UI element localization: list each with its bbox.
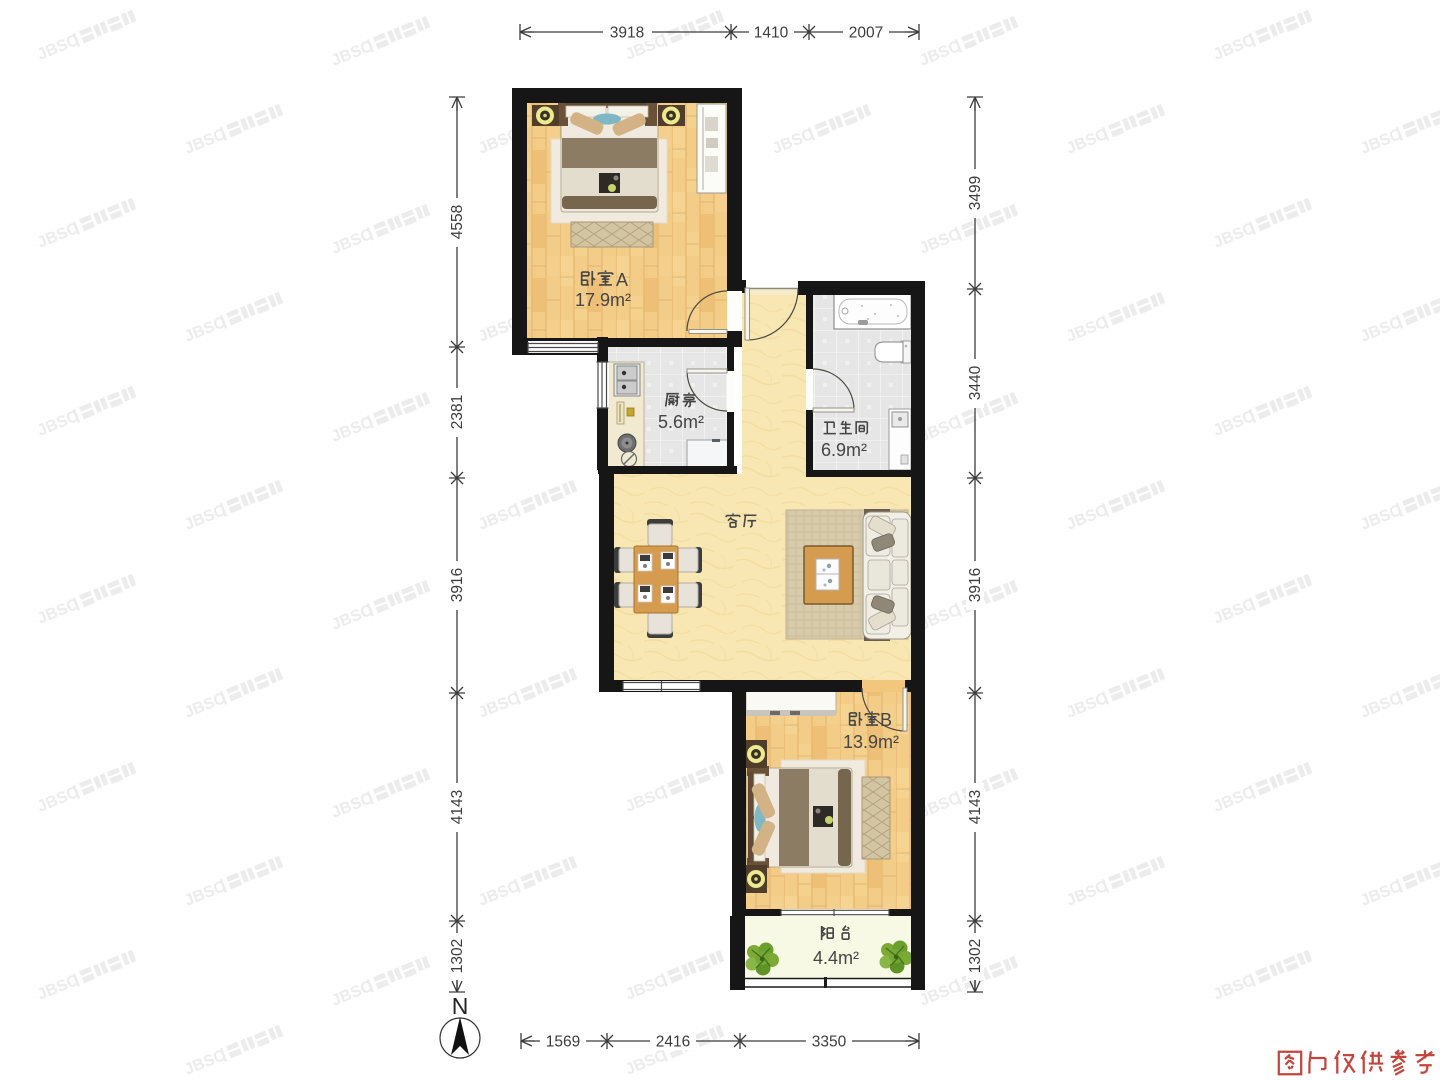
svg-text:2416: 2416 (656, 1034, 690, 1051)
svg-text:A: A (616, 270, 628, 290)
svg-text:4143: 4143 (967, 790, 984, 824)
svg-text:B: B (880, 710, 892, 730)
svg-text:4558: 4558 (449, 205, 466, 239)
svg-text:17.9m²: 17.9m² (575, 290, 631, 310)
svg-text:3918: 3918 (610, 25, 644, 42)
svg-text:3916: 3916 (967, 568, 984, 602)
svg-text:1410: 1410 (754, 25, 789, 42)
svg-text:4143: 4143 (449, 790, 466, 824)
svg-text:N: N (452, 993, 469, 1019)
svg-text:3916: 3916 (449, 568, 466, 602)
svg-text:2007: 2007 (849, 25, 883, 42)
svg-text:3440: 3440 (967, 365, 984, 400)
svg-text:4.4m²: 4.4m² (813, 948, 859, 968)
svg-text:3499: 3499 (967, 176, 984, 210)
svg-text:1302: 1302 (449, 939, 466, 973)
svg-text:2381: 2381 (449, 395, 466, 429)
svg-text:1302: 1302 (967, 939, 984, 973)
svg-text:5.6m²: 5.6m² (658, 412, 704, 432)
svg-text:13.9m²: 13.9m² (843, 732, 899, 752)
svg-text:1569: 1569 (546, 1034, 580, 1051)
svg-text:3350: 3350 (812, 1034, 847, 1051)
svg-text:6.9m²: 6.9m² (821, 440, 867, 460)
